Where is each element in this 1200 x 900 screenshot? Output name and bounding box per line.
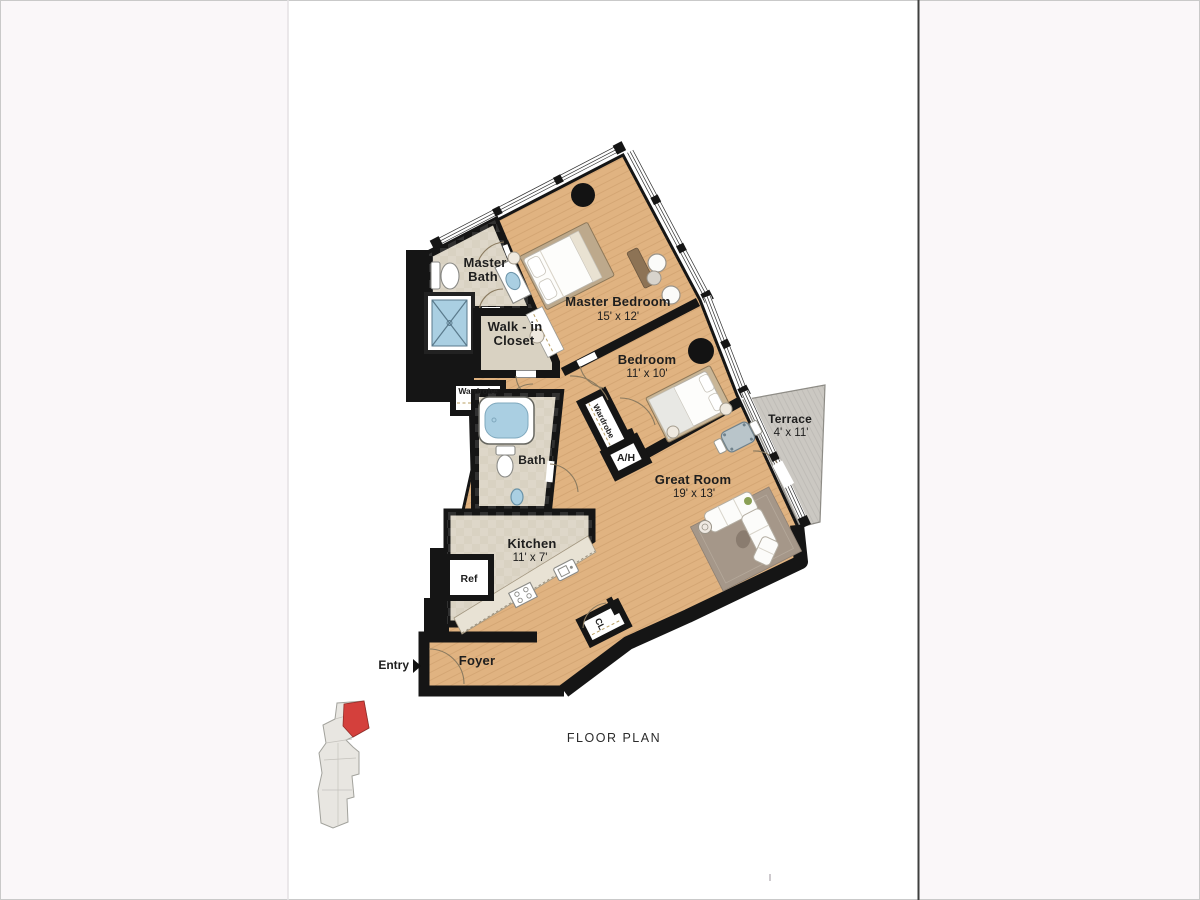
- master-bedroom-label: Master Bedroom: [565, 294, 670, 309]
- great-room-dims: 19' x 13': [673, 488, 715, 500]
- column-masterbedroom: [571, 183, 595, 207]
- terrace-label: Terrace: [768, 412, 812, 426]
- page-title: FLOOR PLAN: [567, 731, 661, 745]
- nightstand-icon: [508, 252, 520, 264]
- armchair-icon: [648, 254, 666, 272]
- master-bath-toilet-icon: [431, 262, 459, 289]
- bath-sink-icon: [511, 489, 523, 505]
- bath-label: Bath: [518, 453, 545, 467]
- walk-in-label2: Closet: [494, 333, 535, 348]
- bath-toilet-icon: [496, 446, 515, 477]
- master-bath-label2: Bath: [468, 269, 498, 284]
- coffee-table-icon: [699, 521, 712, 534]
- side-table-icon: [647, 271, 661, 285]
- entry-marker: Entry: [378, 658, 421, 673]
- right-margin: [919, 0, 1200, 900]
- floor-plan-page: Master Bath Walk - in Closet Master Bedr…: [0, 0, 1200, 900]
- bedroom-dims: 11' x 10': [626, 368, 667, 380]
- wardrobe-lower-label: Wardrobe: [458, 386, 498, 396]
- stool-icon: [667, 426, 679, 438]
- refrigerator-label: Ref: [461, 573, 478, 585]
- master-bedroom-dims: 15' x 12': [597, 311, 639, 323]
- kitchen-label: Kitchen: [507, 536, 556, 551]
- great-room-label: Great Room: [655, 472, 731, 487]
- kitchen-dims: 11' x 7': [513, 552, 548, 564]
- bedroom-label: Bedroom: [618, 352, 676, 367]
- terrace-dims: 4' x 11': [774, 427, 809, 439]
- column-bedroom: [688, 338, 714, 364]
- accent-pillow-icon: [744, 497, 752, 505]
- walk-in-label: Walk - in: [488, 319, 543, 334]
- foyer-label: Foyer: [459, 653, 495, 668]
- entry-label: Entry: [378, 658, 409, 672]
- master-bath-label: Master: [463, 255, 506, 270]
- air-handler-label: A/H: [617, 452, 635, 464]
- stool-icon: [720, 403, 732, 415]
- key-plan: [318, 701, 369, 828]
- left-margin: [0, 0, 288, 900]
- shower-icon: [426, 294, 473, 352]
- floor-plan-canvas: Master Bath Walk - in Closet Master Bedr…: [0, 0, 1200, 900]
- bathtub-icon: [479, 397, 534, 444]
